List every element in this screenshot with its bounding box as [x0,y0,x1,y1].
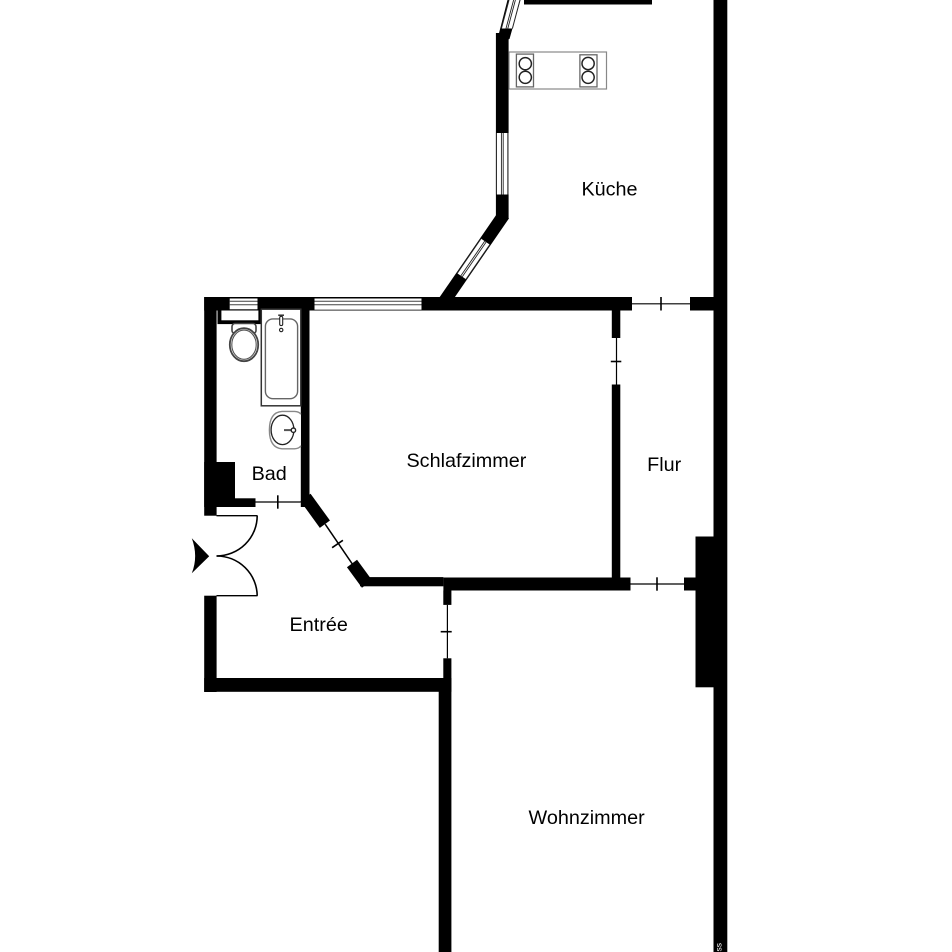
svg-text:Schlafzimmer: Schlafzimmer [406,450,526,472]
svg-text:ss: ss [714,943,724,952]
svg-text:Entrée: Entrée [290,614,348,636]
svg-text:Bad: Bad [252,463,287,485]
svg-text:Flur: Flur [647,454,681,476]
svg-text:Wohnzimmer: Wohnzimmer [529,807,646,829]
svg-text:Küche: Küche [581,179,637,201]
